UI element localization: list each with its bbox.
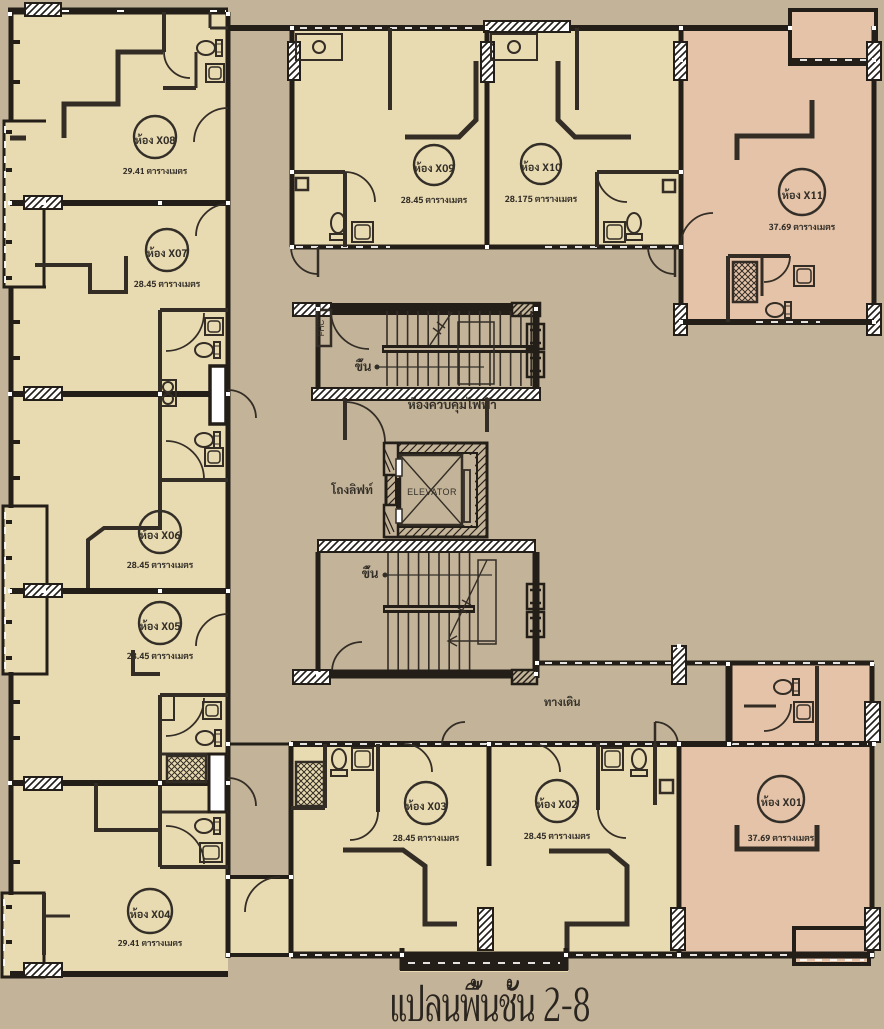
svg-text:FHC: FHC bbox=[317, 320, 326, 337]
svg-text:ELEVATOR: ELEVATOR bbox=[407, 487, 457, 497]
